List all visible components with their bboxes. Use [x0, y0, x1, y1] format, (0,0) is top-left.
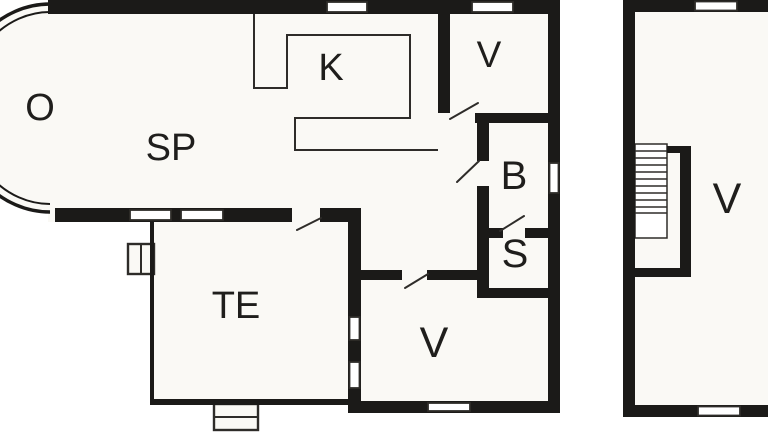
room-label-v-top: V	[477, 34, 502, 75]
room-label-k: K	[318, 47, 343, 89]
terrace-bottom-wall	[150, 399, 352, 405]
window	[350, 317, 360, 340]
b-s-wall-right	[525, 228, 548, 238]
sp-bottom-wall-left	[55, 208, 292, 222]
hall-vbottom-wall-left	[352, 270, 402, 280]
window	[181, 210, 223, 220]
entrance-step	[214, 404, 258, 430]
room-label-v-annex: V	[713, 175, 742, 223]
window	[695, 2, 737, 11]
room-label-sp: SP	[146, 127, 197, 169]
hall-b-wall-lower	[477, 186, 489, 297]
window	[472, 2, 513, 12]
sp-vtop-divider	[438, 0, 450, 113]
floor-plan: O SP K V B S TE V V	[0, 0, 768, 432]
annex-left-wall	[623, 0, 635, 417]
terrace-left-wall	[150, 222, 154, 404]
room-label-s: S	[502, 232, 529, 276]
sp-bottom-wall-right	[320, 208, 361, 222]
stairwell-bottom-wall	[625, 268, 691, 277]
staircase	[635, 144, 667, 238]
window	[130, 210, 171, 220]
room-label-te: TE	[212, 285, 261, 327]
hall-vbottom-wall-right	[427, 270, 477, 280]
window	[428, 403, 470, 411]
room-label-b: B	[501, 154, 528, 198]
annex-bottom-wall	[623, 405, 768, 417]
stair-railing-vertical	[680, 146, 691, 277]
window	[327, 2, 367, 12]
room-label-v-bottom: V	[420, 319, 449, 367]
room-label-o: O	[25, 87, 55, 129]
window	[350, 362, 360, 388]
vtop-bottom-wall	[475, 113, 560, 123]
main-right-wall	[548, 0, 560, 413]
stair-railing-top	[667, 146, 691, 153]
window	[698, 407, 740, 416]
floor-plan-drawing: O SP K V B S TE V V	[0, 0, 768, 432]
s-bottom-wall	[477, 288, 560, 298]
window	[550, 163, 559, 193]
hall-b-wall-upper	[477, 123, 489, 161]
